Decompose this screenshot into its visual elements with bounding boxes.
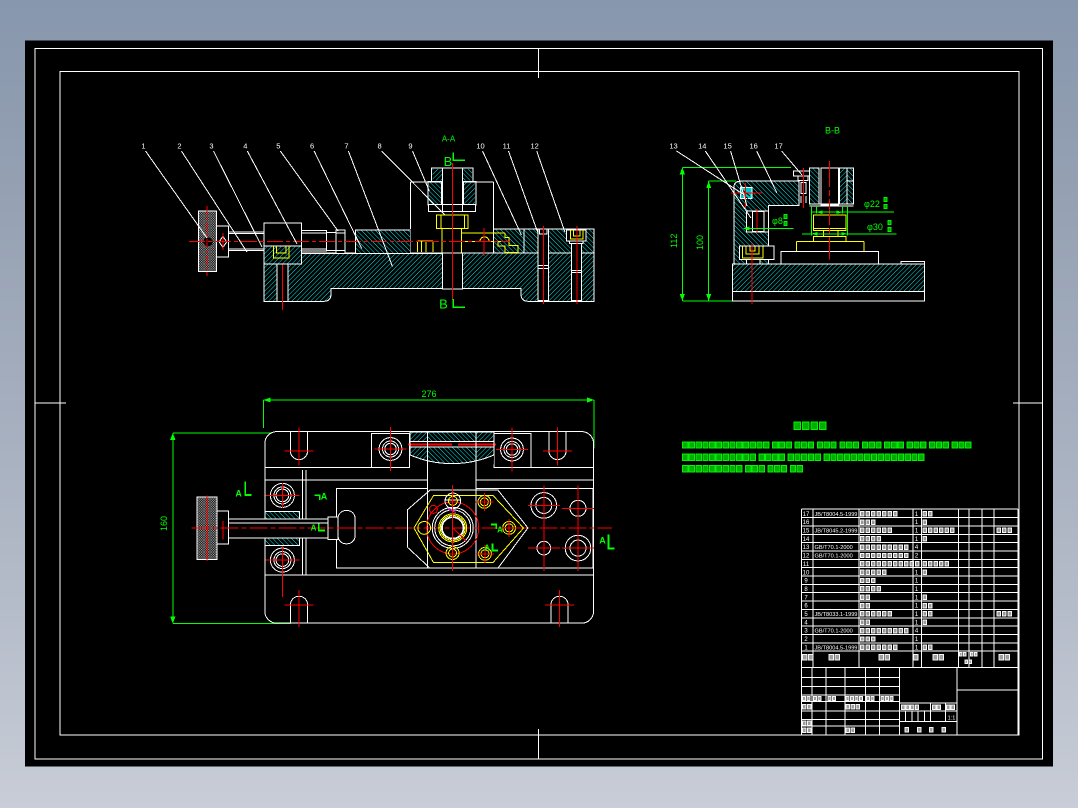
- svg-text:112: 112: [669, 234, 679, 248]
- svg-text:A: A: [484, 544, 490, 553]
- svg-text:GB/T70.1-2000: GB/T70.1-2000: [815, 554, 853, 560]
- svg-text:16: 16: [803, 520, 810, 526]
- svg-text:16: 16: [750, 142, 758, 151]
- svg-text:A: A: [311, 523, 317, 532]
- svg-text:φ22: φ22: [864, 199, 880, 209]
- svg-text:11: 11: [803, 562, 810, 568]
- svg-text:B: B: [444, 154, 453, 169]
- svg-text:100: 100: [695, 235, 705, 250]
- svg-text:B-B: B-B: [825, 126, 840, 136]
- svg-text:14: 14: [803, 537, 810, 543]
- svg-text:A: A: [497, 526, 503, 535]
- svg-text:11: 11: [503, 142, 511, 151]
- svg-text:276: 276: [421, 389, 436, 399]
- svg-text:7: 7: [344, 142, 348, 151]
- svg-text:17: 17: [774, 142, 782, 151]
- svg-text:17: 17: [803, 512, 810, 518]
- svg-text:A: A: [599, 536, 606, 546]
- svg-text:10: 10: [803, 570, 810, 576]
- svg-text:12: 12: [531, 142, 539, 151]
- svg-text:2: 2: [177, 142, 181, 151]
- svg-text:A-A: A-A: [442, 135, 456, 144]
- svg-text:5: 5: [276, 142, 280, 151]
- svg-text:GB/T70.1-2000: GB/T70.1-2000: [815, 545, 853, 551]
- svg-text:6: 6: [310, 142, 314, 151]
- svg-text:160: 160: [159, 516, 169, 531]
- svg-text:φ30: φ30: [867, 222, 883, 232]
- svg-text:8: 8: [378, 142, 382, 151]
- svg-text:13: 13: [669, 142, 677, 151]
- svg-text:13: 13: [803, 545, 810, 551]
- svg-text:JB/T8045.2-1999: JB/T8045.2-1999: [815, 529, 858, 535]
- svg-text:4: 4: [243, 142, 247, 151]
- svg-text:14: 14: [698, 142, 706, 151]
- svg-text:A: A: [321, 492, 328, 502]
- svg-text:A: A: [235, 489, 242, 499]
- svg-text:12: 12: [803, 554, 810, 560]
- svg-text:9: 9: [408, 142, 412, 151]
- svg-text:15: 15: [803, 529, 810, 535]
- svg-text:1:1: 1:1: [948, 716, 956, 722]
- svg-text:φ8: φ8: [772, 216, 783, 226]
- svg-text:JB/T8033.1-1999: JB/T8033.1-1999: [815, 612, 858, 618]
- svg-text:1: 1: [141, 142, 145, 151]
- svg-text:B: B: [439, 297, 448, 312]
- svg-text:JB/T8004.5-1999: JB/T8004.5-1999: [815, 512, 858, 518]
- svg-text:15: 15: [723, 142, 731, 151]
- svg-text:GB/T70.1-2000: GB/T70.1-2000: [815, 629, 853, 635]
- svg-text:3: 3: [209, 142, 213, 151]
- svg-text:JB/T8004.5-1999: JB/T8004.5-1999: [815, 645, 858, 651]
- svg-text:10: 10: [476, 142, 484, 151]
